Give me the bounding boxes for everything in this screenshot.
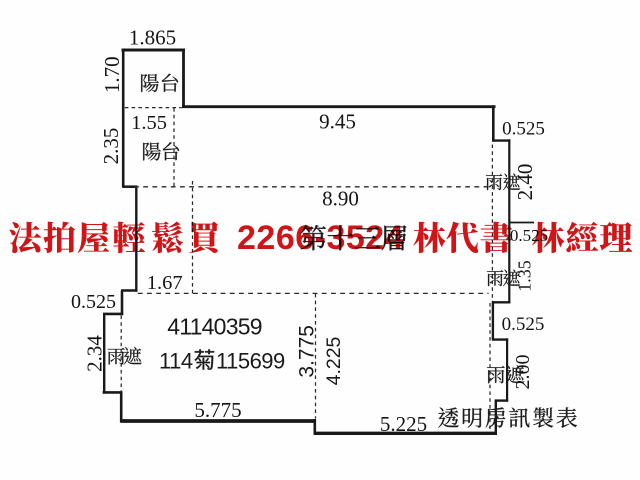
- svg-text:0.525: 0.525: [71, 291, 116, 313]
- svg-text:2266-3524: 2266-3524: [237, 219, 404, 257]
- svg-text:41140359: 41140359: [167, 314, 262, 340]
- svg-text:5.225: 5.225: [380, 412, 427, 436]
- svg-text:115699: 115699: [216, 348, 285, 373]
- svg-text:1.55: 1.55: [131, 112, 167, 134]
- svg-text:1.35: 1.35: [515, 260, 535, 292]
- svg-text:1.70: 1.70: [100, 56, 124, 93]
- svg-text:4.225: 4.225: [323, 336, 345, 385]
- svg-text:2.00: 2.00: [512, 355, 534, 390]
- svg-text:0.525: 0.525: [502, 314, 545, 335]
- svg-text:114: 114: [159, 348, 193, 373]
- svg-text:0.525: 0.525: [502, 118, 545, 139]
- svg-text:5.775: 5.775: [194, 398, 241, 422]
- svg-text:3.775: 3.775: [295, 325, 318, 378]
- svg-text:8.90: 8.90: [322, 187, 359, 211]
- svg-text:1.67: 1.67: [147, 272, 183, 294]
- svg-text:9.45: 9.45: [319, 110, 356, 134]
- svg-text:2.34: 2.34: [83, 335, 107, 372]
- svg-text:0.525: 0.525: [510, 226, 548, 245]
- svg-text:1.865: 1.865: [129, 26, 176, 50]
- svg-text:2.40: 2.40: [513, 164, 537, 201]
- svg-text:2.35: 2.35: [99, 128, 123, 165]
